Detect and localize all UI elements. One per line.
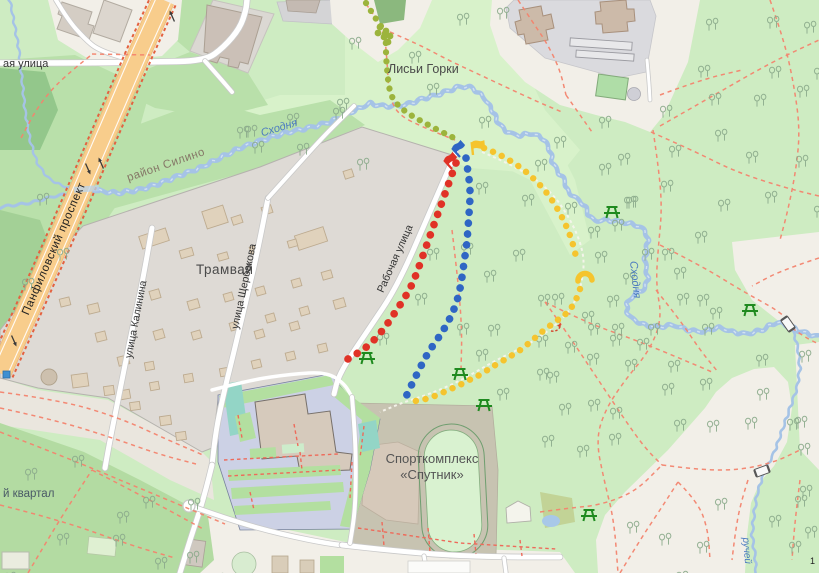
svg-text:й квартал: й квартал (3, 488, 54, 500)
svg-text:ая улица: ая улица (3, 58, 49, 70)
svg-text:Спорткомплекс: Спорткомплекс (386, 451, 479, 466)
svg-text:Лисьи Горки: Лисьи Горки (388, 62, 459, 76)
svg-text:1: 1 (810, 556, 815, 566)
svg-text:«Спутник»: «Спутник» (400, 467, 463, 482)
